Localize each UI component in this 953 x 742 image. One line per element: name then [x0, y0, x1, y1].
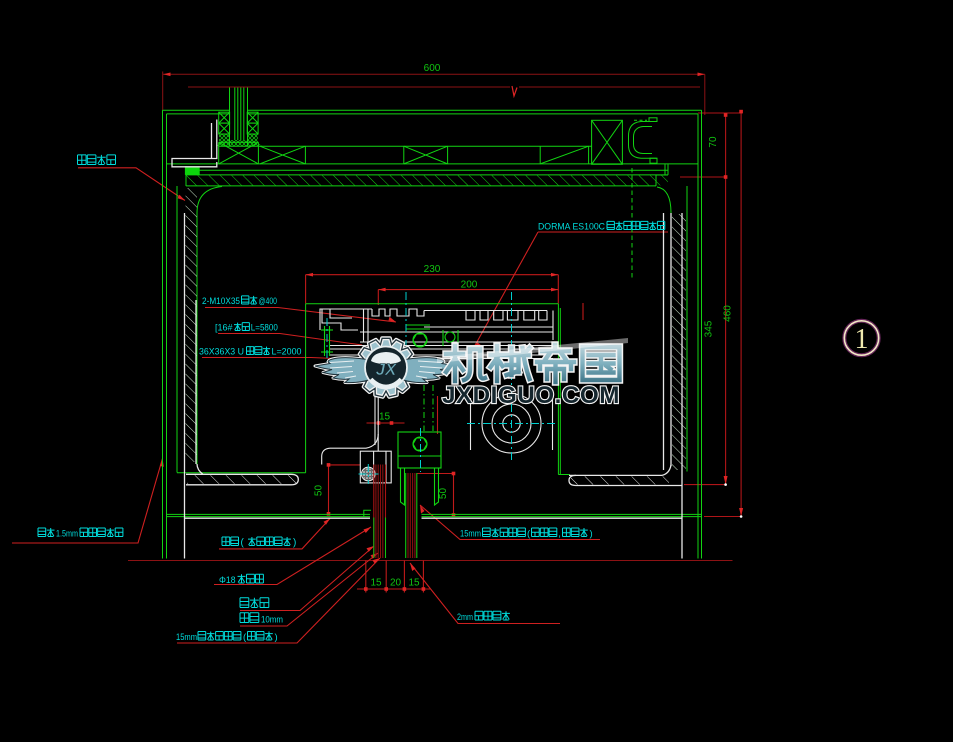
svg-text:15: 15 — [370, 578, 382, 589]
svg-text:1.5mm: 1.5mm — [56, 529, 78, 540]
svg-text:200: 200 — [461, 280, 478, 291]
svg-text:L=5800: L=5800 — [251, 323, 278, 334]
svg-text:50: 50 — [438, 488, 449, 500]
svg-text:15: 15 — [408, 578, 420, 589]
svg-text:345: 345 — [704, 320, 715, 337]
svg-text:DORMA ES100C: DORMA ES100C — [538, 222, 605, 233]
svg-text:JXDIGUO.COM: JXDIGUO.COM — [442, 382, 620, 409]
svg-text:15mm: 15mm — [460, 529, 481, 540]
svg-text:): ) — [293, 538, 296, 549]
svg-text:600: 600 — [424, 63, 441, 74]
svg-text:460: 460 — [723, 305, 734, 322]
svg-text:1: 1 — [855, 324, 869, 355]
svg-text:2-M10X35: 2-M10X35 — [202, 296, 240, 307]
svg-text:[16#: [16# — [215, 323, 233, 334]
svg-text:15: 15 — [379, 412, 391, 423]
svg-text:Φ18: Φ18 — [219, 575, 236, 586]
svg-text:36X36X3 U: 36X36X3 U — [199, 347, 244, 358]
svg-text:L=2000: L=2000 — [272, 347, 302, 358]
svg-text:): ) — [275, 632, 278, 643]
svg-text:15mm: 15mm — [176, 632, 197, 643]
svg-text:20: 20 — [390, 578, 402, 589]
svg-text:230: 230 — [424, 264, 441, 275]
svg-text:): ) — [590, 529, 593, 540]
svg-text:10mm: 10mm — [261, 615, 283, 626]
svg-text:70: 70 — [708, 136, 719, 148]
svg-text:,: , — [558, 529, 561, 540]
svg-text:JX: JX — [376, 360, 398, 379]
svg-text:2mm: 2mm — [457, 612, 473, 623]
svg-text:@400: @400 — [259, 296, 278, 307]
svg-text:50: 50 — [314, 485, 325, 497]
